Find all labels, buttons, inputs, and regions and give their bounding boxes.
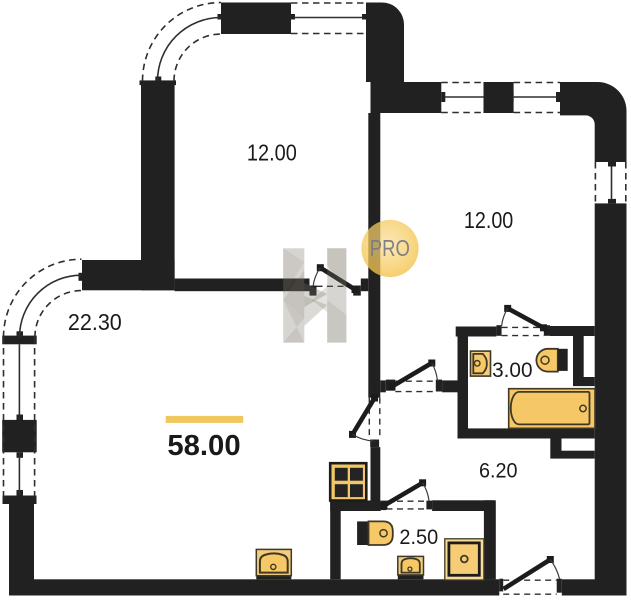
svg-text:6.20: 6.20: [479, 458, 518, 482]
svg-text:12.00: 12.00: [247, 140, 297, 166]
svg-text:58.00: 58.00: [167, 430, 240, 462]
svg-text:2.50: 2.50: [399, 525, 438, 549]
svg-text:22.30: 22.30: [68, 309, 122, 335]
svg-text:3.00: 3.00: [492, 359, 532, 382]
svg-text:PRO: PRO: [370, 235, 410, 261]
svg-text:12.00: 12.00: [464, 207, 513, 233]
